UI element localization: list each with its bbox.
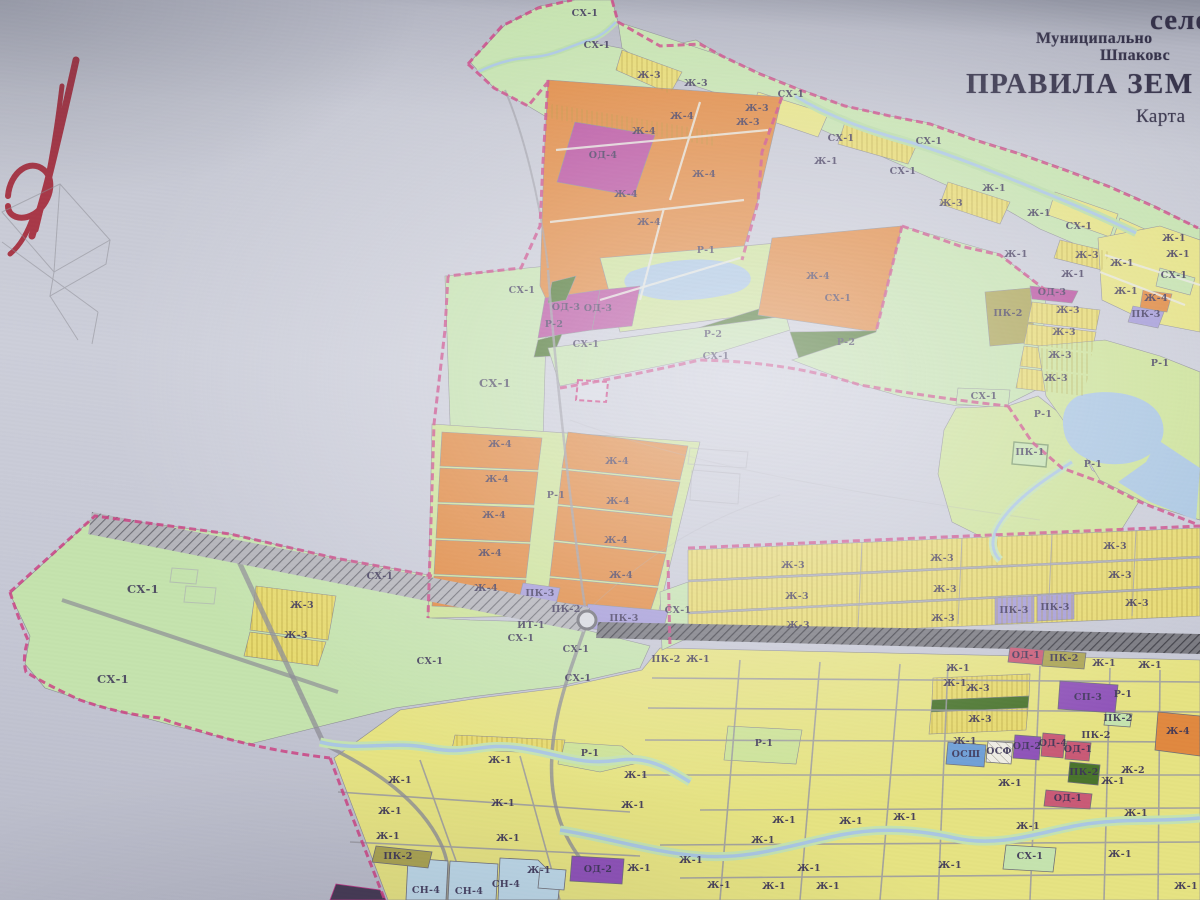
zone-label: Ж-1: [1061, 269, 1085, 280]
zone-label: СХ-1: [1066, 221, 1093, 232]
zone-label: СХ-1: [508, 633, 535, 644]
zone-label: Ж-4: [670, 111, 694, 122]
zone-label: ОД-2: [584, 864, 612, 875]
zone-label: Ж-1: [496, 833, 520, 844]
zone-label: Ж-4: [488, 439, 512, 450]
zone-label: ПК-3: [525, 588, 554, 599]
zone-label: Ж-4: [604, 535, 628, 546]
zone-label: Ж-1: [388, 775, 412, 786]
zone-label: Ж-1: [1027, 208, 1051, 219]
zone-label: Ж-1: [751, 835, 775, 846]
zone-label: ПК-3: [1040, 602, 1069, 613]
zone-label: Ж-1: [686, 654, 710, 665]
zone-label: Р-2: [837, 337, 856, 348]
zone-label: ОД-4: [589, 150, 618, 161]
zone-label: СХ-1: [417, 656, 444, 667]
zone-label: ПК-2: [993, 308, 1022, 319]
zone-label: СХ-1: [971, 391, 998, 402]
zone-label: Ж-1: [1016, 821, 1040, 832]
zone-label: Ж-1: [491, 798, 515, 809]
zone-label: Ж-3: [786, 620, 810, 631]
zone-label: Ж-1: [1110, 258, 1134, 269]
zone-label: Ж-3: [931, 613, 955, 624]
photographed-zoning-map: СХ-1СХ-1Ж-3Ж-3Ж-3Ж-3СХ-1СХ-1СХ-1Ж-1СХ-1Ж…: [0, 0, 1200, 900]
zone-label: ПК-2: [1103, 713, 1132, 724]
zone-label: Ж-1: [998, 778, 1022, 789]
zone-label: Ж-4: [609, 570, 633, 581]
zone-label: СХ-1: [825, 293, 852, 304]
zone-label: СХ-1: [828, 133, 855, 144]
zone-label: ПК-2: [551, 604, 580, 615]
zone-label: СХ-1: [127, 582, 159, 596]
zone-label: Р-1: [581, 748, 600, 759]
zone-label: Ж-4: [1144, 293, 1168, 304]
zone-label: ПК-3: [1131, 309, 1160, 320]
red-pen-sketch: [8, 60, 76, 254]
zone-label: Ж-3: [1048, 350, 1072, 361]
zone-label: ПК-2: [651, 654, 680, 665]
zone-label: Ж-1: [707, 880, 731, 891]
zone-label: Ж-1: [1108, 849, 1132, 860]
zone-label: Ж-1: [1092, 658, 1116, 669]
zone-label: СХ-1: [479, 376, 511, 390]
zone-label: Ж-3: [1052, 327, 1076, 338]
zone-label: Ж-3: [1125, 598, 1149, 609]
zone-label: Ж-3: [736, 117, 760, 128]
zone-label: ПК-2: [1069, 767, 1098, 778]
zone-label: Ж-4: [485, 474, 509, 485]
zone-label: Ж-3: [933, 584, 957, 595]
zone-label: Ж-1: [627, 863, 651, 874]
zone-label: Ж-3: [1108, 570, 1132, 581]
zone-label: Ж-1: [816, 881, 840, 892]
zone-label: Ж-4: [632, 126, 656, 137]
zone-label: ПК-2: [1081, 730, 1110, 741]
zone-label: Ж-1: [1101, 776, 1125, 787]
zone-label: Ж-3: [1075, 250, 1099, 261]
zone-label: СХ-1: [572, 8, 599, 19]
zone-label: Ж-3: [1044, 373, 1068, 384]
zone-label: Ж-4: [1166, 726, 1190, 737]
zone-label: Ж-1: [1174, 881, 1198, 892]
zone-label: Ж-1: [1124, 808, 1148, 819]
zone-label: ПК-1: [1015, 447, 1044, 458]
zone-label: Ж-4: [478, 548, 502, 559]
zone-label: СХ-1: [1017, 851, 1044, 862]
zone-label: Ж-4: [474, 583, 498, 594]
zone-label: Ж-3: [939, 198, 963, 209]
zone-label: Ж-3: [1056, 305, 1080, 316]
zone-label: Ж-1: [943, 678, 967, 689]
zone-label: СХ-1: [509, 285, 536, 296]
zone-label: ОСФ: [986, 746, 1012, 757]
zone-label: СХ-1: [890, 166, 917, 177]
zone-label: Ж-1: [1166, 249, 1190, 260]
zone-label: ОД-3: [584, 303, 612, 314]
zone-label: СХ-1: [703, 351, 730, 362]
zone-label: ОД-3: [1038, 287, 1066, 298]
zone-label: Ж-2: [1121, 765, 1145, 776]
zone-label: СН-4: [412, 885, 440, 896]
zone-label: Ж-1: [938, 860, 962, 871]
zone-label: Р-2: [704, 329, 723, 340]
zone-label: СХ-1: [778, 89, 805, 100]
zone-label: Ж-3: [781, 560, 805, 571]
road-junction: [578, 611, 596, 629]
zone-label: Ж-4: [637, 217, 661, 228]
zone-label: Ж-1: [624, 770, 648, 781]
zone-label: СН-4: [492, 879, 520, 890]
zone-label: СХ-1: [1161, 270, 1188, 281]
zone-label: ПК-3: [609, 613, 638, 624]
zone-label: СХ-1: [584, 40, 611, 51]
zone-label: Ж-1: [679, 855, 703, 866]
zone-label: Ж-4: [605, 456, 629, 467]
zone-label: Ж-1: [982, 183, 1006, 194]
zone-label: СХ-1: [665, 605, 692, 616]
zone-label: Ж-3: [637, 70, 661, 81]
zone-label: ОД-4: [1039, 738, 1068, 749]
zone-label: Ж-3: [968, 714, 992, 725]
zone-label: Ж-1: [946, 663, 970, 674]
zone-label: Ж-1: [1138, 660, 1162, 671]
zone-label: ПК-3: [999, 605, 1028, 616]
zone-label: Ж-3: [745, 103, 769, 114]
zone-label: Ж-3: [930, 553, 954, 564]
zone-label: СХ-1: [565, 673, 592, 684]
zone-label: ОД-3: [552, 302, 580, 313]
zone-label: Ж-1: [839, 816, 863, 827]
zone-label: Ж-1: [376, 831, 400, 842]
zone-label: СХ-1: [916, 136, 943, 147]
zone-label: Ж-3: [785, 591, 809, 602]
zone-label: Р-1: [1034, 409, 1053, 420]
zone-label: СХ-1: [573, 339, 600, 350]
zone-label: ОД-2: [1013, 741, 1041, 752]
zone-label: Ж-4: [606, 496, 630, 507]
zone-label: СН-4: [455, 886, 483, 897]
zone-label: СХ-1: [97, 672, 129, 686]
zone-label: Ж-1: [772, 815, 796, 826]
zone-label: Ж-1: [621, 800, 645, 811]
zone-label: Р-2: [545, 319, 564, 330]
zone-label: ОСШ: [952, 749, 981, 760]
zone-label: Ж-1: [1004, 249, 1028, 260]
zone-label: Ж-1: [893, 812, 917, 823]
zone-label: Ж-1: [527, 865, 551, 876]
zone-label: Ж-3: [290, 600, 314, 611]
zone-label: Ж-1: [378, 806, 402, 817]
zone-label: Ж-1: [1162, 233, 1186, 244]
zone-label: Ж-3: [284, 630, 308, 641]
zone-label: Ж-4: [614, 189, 638, 200]
zone-label: Р-1: [755, 738, 774, 749]
zone-label: СХ-1: [367, 571, 394, 582]
zone-label: ИТ-1: [517, 620, 545, 631]
boundary-notch: [576, 380, 608, 402]
zone-label: Ж-1: [1114, 286, 1138, 297]
zone-label: Р-1: [1114, 689, 1133, 700]
zone-label: ОД-1: [1064, 744, 1092, 755]
pencil-sketch: [2, 184, 110, 344]
zone-label: Р-1: [1151, 358, 1170, 369]
zone-label: Ж-3: [684, 78, 708, 89]
zone-label: ПК-2: [383, 851, 412, 862]
zone-label: СП-3: [1074, 692, 1102, 703]
zone-label: ОД-1: [1054, 793, 1082, 804]
zone-label: Ж-3: [966, 683, 990, 694]
zone-label: Р-1: [1084, 459, 1103, 470]
zone-label: СХ-1: [563, 644, 590, 655]
zone-label: Р-1: [697, 245, 716, 256]
zone-label: Ж-4: [806, 271, 830, 282]
zone-label: Ж-1: [814, 156, 838, 167]
zone-label: Ж-4: [692, 169, 716, 180]
zone-label: Ж-1: [488, 755, 512, 766]
zone-label: Р-1: [547, 490, 566, 501]
zone-label: Ж-3: [1103, 541, 1127, 552]
zone-label: Ж-1: [953, 736, 977, 747]
zoning-map: СХ-1СХ-1Ж-3Ж-3Ж-3Ж-3СХ-1СХ-1СХ-1Ж-1СХ-1Ж…: [0, 0, 1200, 900]
zone-label: Ж-4: [482, 510, 506, 521]
zone-label: Ж-1: [762, 881, 786, 892]
zone-label: Ж-1: [797, 863, 821, 874]
zone-label: ОД-1: [1012, 650, 1040, 661]
zone-label: ПК-2: [1049, 653, 1078, 664]
